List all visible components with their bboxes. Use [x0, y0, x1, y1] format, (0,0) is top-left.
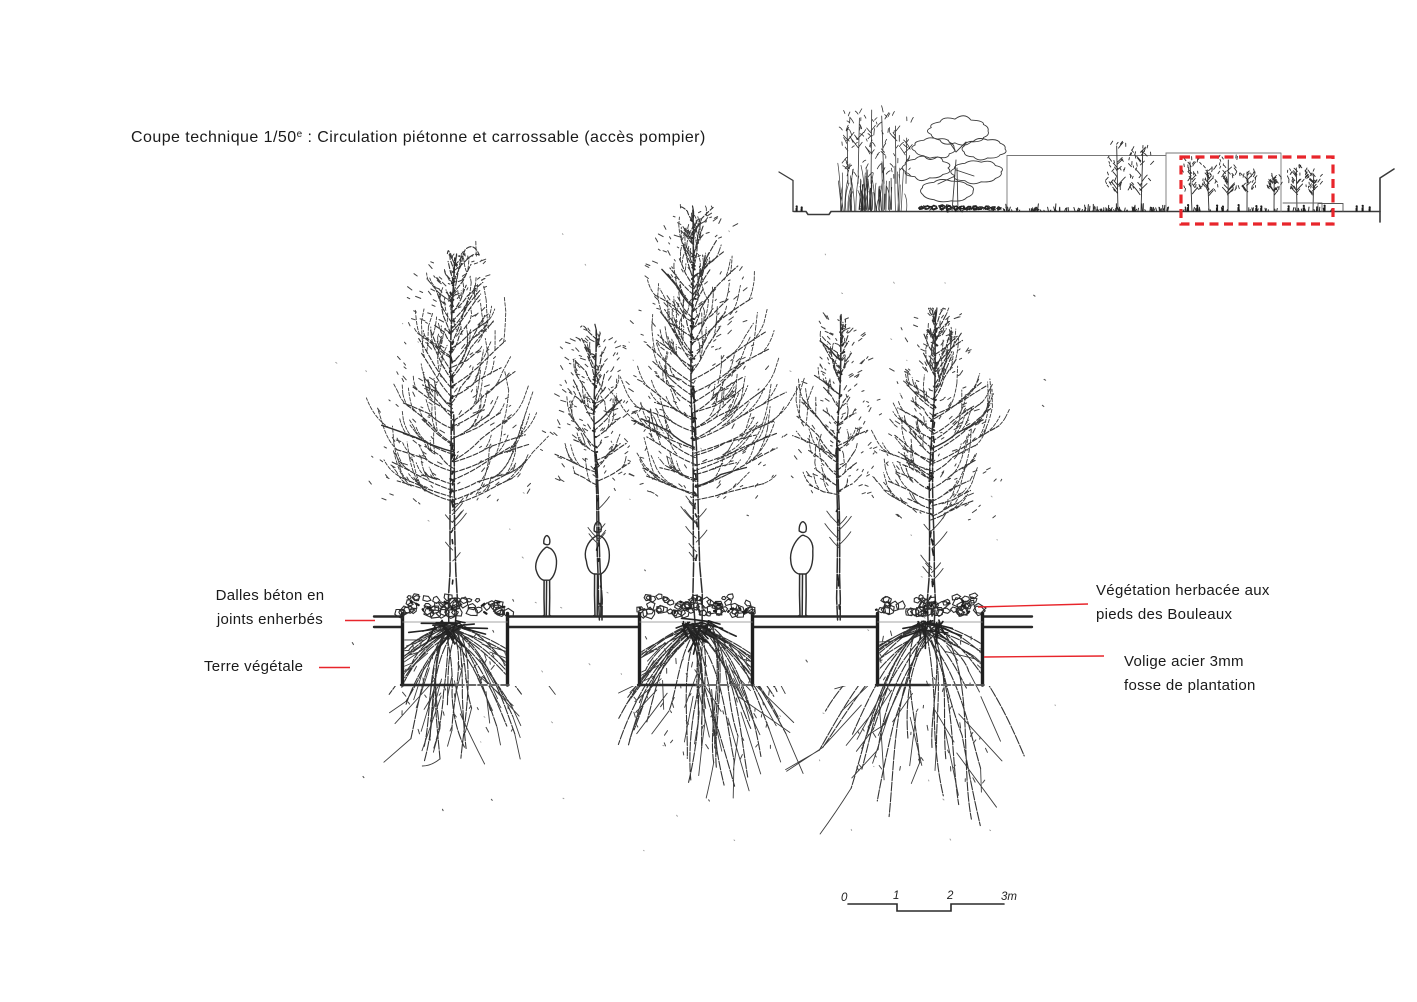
svg-text:3m: 3m: [1001, 891, 1017, 903]
svg-text:Végétation herbacée aux: Végétation herbacée aux: [1096, 582, 1270, 599]
svg-text:1: 1: [893, 890, 899, 902]
svg-text:fosse de plantation: fosse de plantation: [1124, 677, 1256, 694]
svg-text:2: 2: [946, 890, 954, 902]
svg-text:pieds des Bouleaux: pieds des Bouleaux: [1096, 606, 1233, 623]
svg-text:joints enherbés: joints enherbés: [216, 611, 323, 628]
svg-text:Dalles béton en: Dalles béton en: [216, 587, 325, 604]
svg-text:0: 0: [841, 892, 848, 904]
svg-text:Volige acier 3mm: Volige acier 3mm: [1124, 653, 1244, 670]
svg-text:Coupe technique 1/50e : Circul: Coupe technique 1/50e : Circulation piét…: [131, 129, 706, 146]
svg-text:Terre végétale: Terre végétale: [204, 658, 303, 675]
